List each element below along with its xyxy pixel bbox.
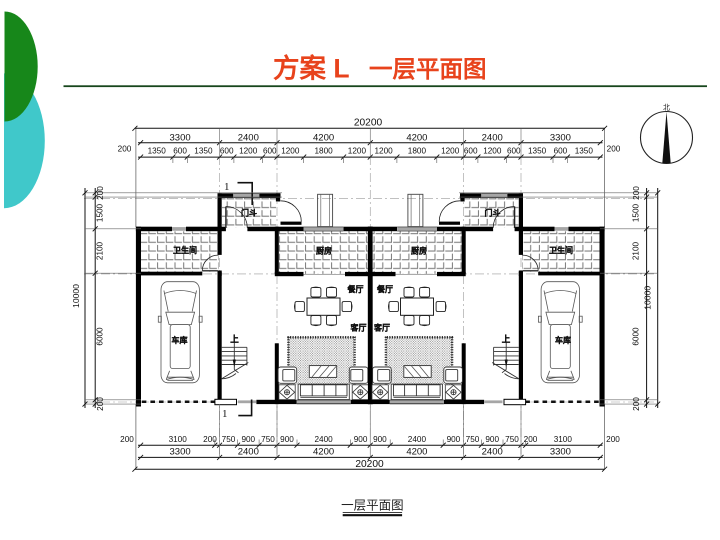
svg-text:900: 900 — [447, 435, 461, 444]
svg-text:门斗: 门斗 — [485, 208, 501, 218]
svg-text:1500: 1500 — [96, 203, 105, 222]
svg-text:200: 200 — [632, 397, 641, 411]
svg-text:4200: 4200 — [313, 132, 334, 143]
svg-text:3300: 3300 — [550, 132, 571, 143]
svg-text:10000: 10000 — [642, 286, 652, 310]
svg-text:餐厅: 餐厅 — [347, 284, 364, 294]
svg-text:1200: 1200 — [441, 147, 460, 156]
svg-text:750: 750 — [505, 435, 519, 444]
svg-text:1350: 1350 — [194, 147, 213, 156]
svg-text:2100: 2100 — [96, 241, 105, 260]
svg-text:750: 750 — [222, 435, 236, 444]
svg-text:厨房: 厨房 — [316, 246, 332, 256]
svg-text:20200: 20200 — [354, 118, 383, 129]
svg-text:600: 600 — [507, 147, 521, 156]
svg-text:3300: 3300 — [550, 446, 571, 457]
svg-text:上: 上 — [502, 334, 511, 344]
svg-text:1350: 1350 — [528, 147, 547, 156]
svg-text:4200: 4200 — [313, 446, 334, 457]
svg-text:1350: 1350 — [148, 147, 167, 156]
svg-text:900: 900 — [373, 435, 387, 444]
svg-text:餐厅: 餐厅 — [376, 284, 393, 294]
svg-text:10000: 10000 — [71, 284, 81, 308]
svg-text:600: 600 — [173, 147, 187, 156]
svg-text:2400: 2400 — [314, 435, 333, 444]
svg-text:1200: 1200 — [348, 147, 367, 156]
svg-text:1800: 1800 — [314, 147, 333, 156]
svg-text:600: 600 — [464, 147, 478, 156]
svg-text:600: 600 — [220, 147, 234, 156]
svg-text:3100: 3100 — [554, 435, 573, 444]
svg-text:客厅: 客厅 — [373, 323, 390, 333]
svg-text:1: 1 — [224, 181, 230, 193]
svg-text:方案 L: 方案 L — [273, 54, 350, 84]
svg-text:3100: 3100 — [169, 435, 188, 444]
svg-text:卫生间: 卫生间 — [549, 245, 573, 255]
svg-text:200: 200 — [96, 186, 105, 200]
svg-text:2400: 2400 — [238, 446, 259, 457]
svg-text:4200: 4200 — [406, 446, 427, 457]
svg-text:2400: 2400 — [238, 132, 259, 143]
svg-text:卫生间: 卫生间 — [173, 245, 197, 255]
svg-text:1200: 1200 — [483, 147, 502, 156]
svg-text:客厅: 客厅 — [350, 323, 367, 333]
svg-text:厨房: 厨房 — [411, 246, 427, 256]
svg-text:1800: 1800 — [408, 147, 427, 156]
svg-text:1350: 1350 — [575, 147, 594, 156]
svg-text:1: 1 — [222, 408, 228, 420]
svg-text:1200: 1200 — [374, 147, 393, 156]
svg-text:2100: 2100 — [631, 241, 640, 260]
svg-text:上: 上 — [230, 334, 239, 344]
svg-text:900: 900 — [280, 435, 294, 444]
svg-text:200: 200 — [118, 145, 132, 154]
svg-text:6000: 6000 — [631, 327, 640, 346]
svg-text:门斗: 门斗 — [241, 208, 257, 218]
svg-text:1200: 1200 — [239, 147, 258, 156]
svg-text:1200: 1200 — [281, 147, 300, 156]
svg-text:200: 200 — [203, 435, 217, 444]
svg-text:2400: 2400 — [482, 132, 503, 143]
svg-text:3300: 3300 — [170, 446, 191, 457]
svg-text:2400: 2400 — [408, 435, 427, 444]
svg-text:3300: 3300 — [170, 132, 191, 143]
svg-text:900: 900 — [485, 435, 499, 444]
svg-text:一层平面图: 一层平面图 — [369, 56, 487, 82]
svg-text:北: 北 — [663, 104, 670, 112]
svg-text:2400: 2400 — [482, 446, 503, 457]
svg-text:600: 600 — [263, 147, 277, 156]
svg-text:20200: 20200 — [355, 459, 384, 470]
svg-text:600: 600 — [554, 147, 568, 156]
svg-text:6000: 6000 — [96, 327, 105, 346]
svg-text:车库: 车库 — [555, 335, 571, 345]
svg-text:200: 200 — [607, 145, 621, 154]
svg-text:200: 200 — [120, 435, 134, 444]
svg-text:200: 200 — [96, 397, 105, 411]
svg-text:车库: 车库 — [172, 335, 188, 345]
svg-text:4200: 4200 — [406, 132, 427, 143]
svg-text:一层平面图: 一层平面图 — [341, 499, 404, 513]
svg-text:750: 750 — [261, 435, 275, 444]
svg-text:200: 200 — [606, 435, 620, 444]
svg-text:750: 750 — [466, 435, 480, 444]
svg-text:900: 900 — [354, 435, 368, 444]
svg-text:900: 900 — [241, 435, 255, 444]
svg-text:200: 200 — [632, 186, 641, 200]
svg-text:1500: 1500 — [631, 203, 640, 222]
